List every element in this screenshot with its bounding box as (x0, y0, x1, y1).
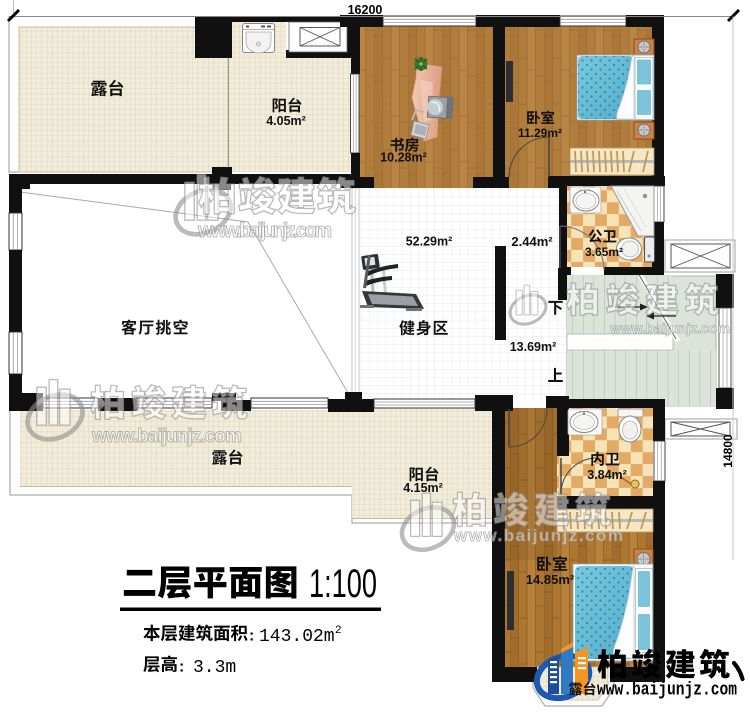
svg-text:3.84m²: 3.84m² (587, 468, 627, 482)
svg-text:www.baijunjz.com: www.baijunjz.com (453, 526, 623, 545)
svg-text:14800: 14800 (721, 434, 735, 468)
svg-text:52.29m²: 52.29m² (406, 235, 453, 249)
svg-text:13.69m²: 13.69m² (510, 340, 557, 354)
svg-text:1:100: 1:100 (309, 562, 377, 606)
svg-text:www.baijunjz.com: www.baijunjz.com (91, 426, 242, 447)
svg-text:www.baijunjz.com: www.baijunjz.com (197, 220, 332, 242)
svg-text::: : (249, 628, 254, 645)
svg-text:3.65m²: 3.65m² (585, 245, 623, 259)
svg-text:16200: 16200 (348, 3, 383, 17)
svg-text:www.baijunjz.com: www.baijunjz.com (609, 320, 730, 336)
svg-text:3.3m: 3.3m (193, 658, 236, 678)
svg-text:14.85m²: 14.85m² (526, 572, 575, 587)
svg-text:2.44m²: 2.44m² (511, 234, 553, 249)
svg-text::: : (179, 659, 184, 676)
svg-text:www.baijunjz.com: www.baijunjz.com (597, 681, 737, 701)
svg-text:10.28m²: 10.28m² (380, 151, 427, 165)
svg-text:11.29m²: 11.29m² (518, 126, 562, 140)
svg-text:4.05m²: 4.05m² (266, 114, 306, 128)
svg-text:143.02m: 143.02m (259, 627, 335, 647)
svg-text:2: 2 (335, 625, 342, 637)
